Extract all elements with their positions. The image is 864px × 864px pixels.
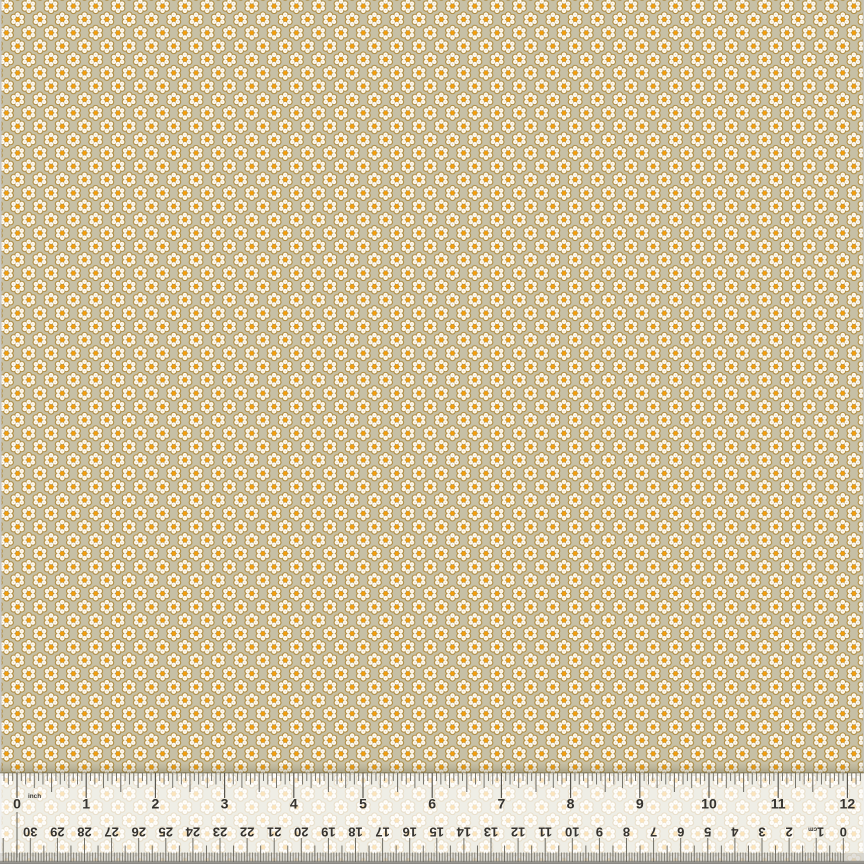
- svg-text:4: 4: [731, 825, 739, 840]
- svg-text:9: 9: [636, 796, 644, 812]
- svg-text:15: 15: [430, 825, 444, 840]
- svg-text:26: 26: [131, 825, 145, 840]
- svg-text:2: 2: [151, 796, 159, 812]
- svg-text:11: 11: [538, 825, 552, 840]
- svg-text:12: 12: [840, 796, 856, 812]
- svg-text:5: 5: [704, 825, 711, 840]
- svg-text:10: 10: [701, 796, 717, 812]
- svg-text:3: 3: [221, 796, 229, 812]
- svg-text:5: 5: [359, 796, 367, 812]
- svg-text:27: 27: [104, 825, 118, 840]
- svg-text:8: 8: [623, 825, 630, 840]
- svg-text:29: 29: [50, 825, 64, 840]
- svg-text:12: 12: [511, 825, 525, 840]
- svg-text:0: 0: [13, 796, 21, 812]
- svg-text:20: 20: [294, 825, 308, 840]
- svg-text:16: 16: [402, 825, 416, 840]
- svg-text:11: 11: [771, 796, 786, 812]
- svg-text:1: 1: [82, 796, 90, 812]
- svg-text:17: 17: [375, 825, 389, 840]
- svg-text:9: 9: [596, 825, 603, 840]
- svg-text:25: 25: [159, 825, 173, 840]
- svg-text:7: 7: [650, 825, 657, 840]
- svg-text:24: 24: [185, 825, 200, 840]
- svg-text:14: 14: [456, 825, 471, 840]
- svg-text:8: 8: [567, 796, 575, 812]
- svg-text:0: 0: [840, 825, 847, 840]
- svg-text:2: 2: [785, 825, 792, 840]
- svg-text:19: 19: [321, 825, 335, 840]
- svg-text:13: 13: [484, 825, 498, 840]
- svg-text:6: 6: [677, 825, 684, 840]
- svg-text:6: 6: [428, 796, 436, 812]
- svg-text:23: 23: [213, 825, 227, 840]
- svg-text:28: 28: [77, 825, 91, 840]
- svg-text:22: 22: [240, 825, 254, 840]
- svg-text:inch: inch: [28, 793, 41, 800]
- svg-text:4: 4: [290, 796, 298, 812]
- svg-text:18: 18: [348, 825, 362, 840]
- svg-text:3: 3: [758, 825, 765, 840]
- svg-text:10: 10: [565, 825, 579, 840]
- svg-text:21: 21: [267, 825, 281, 840]
- svg-text:30: 30: [23, 825, 37, 840]
- svg-text:7: 7: [497, 796, 505, 812]
